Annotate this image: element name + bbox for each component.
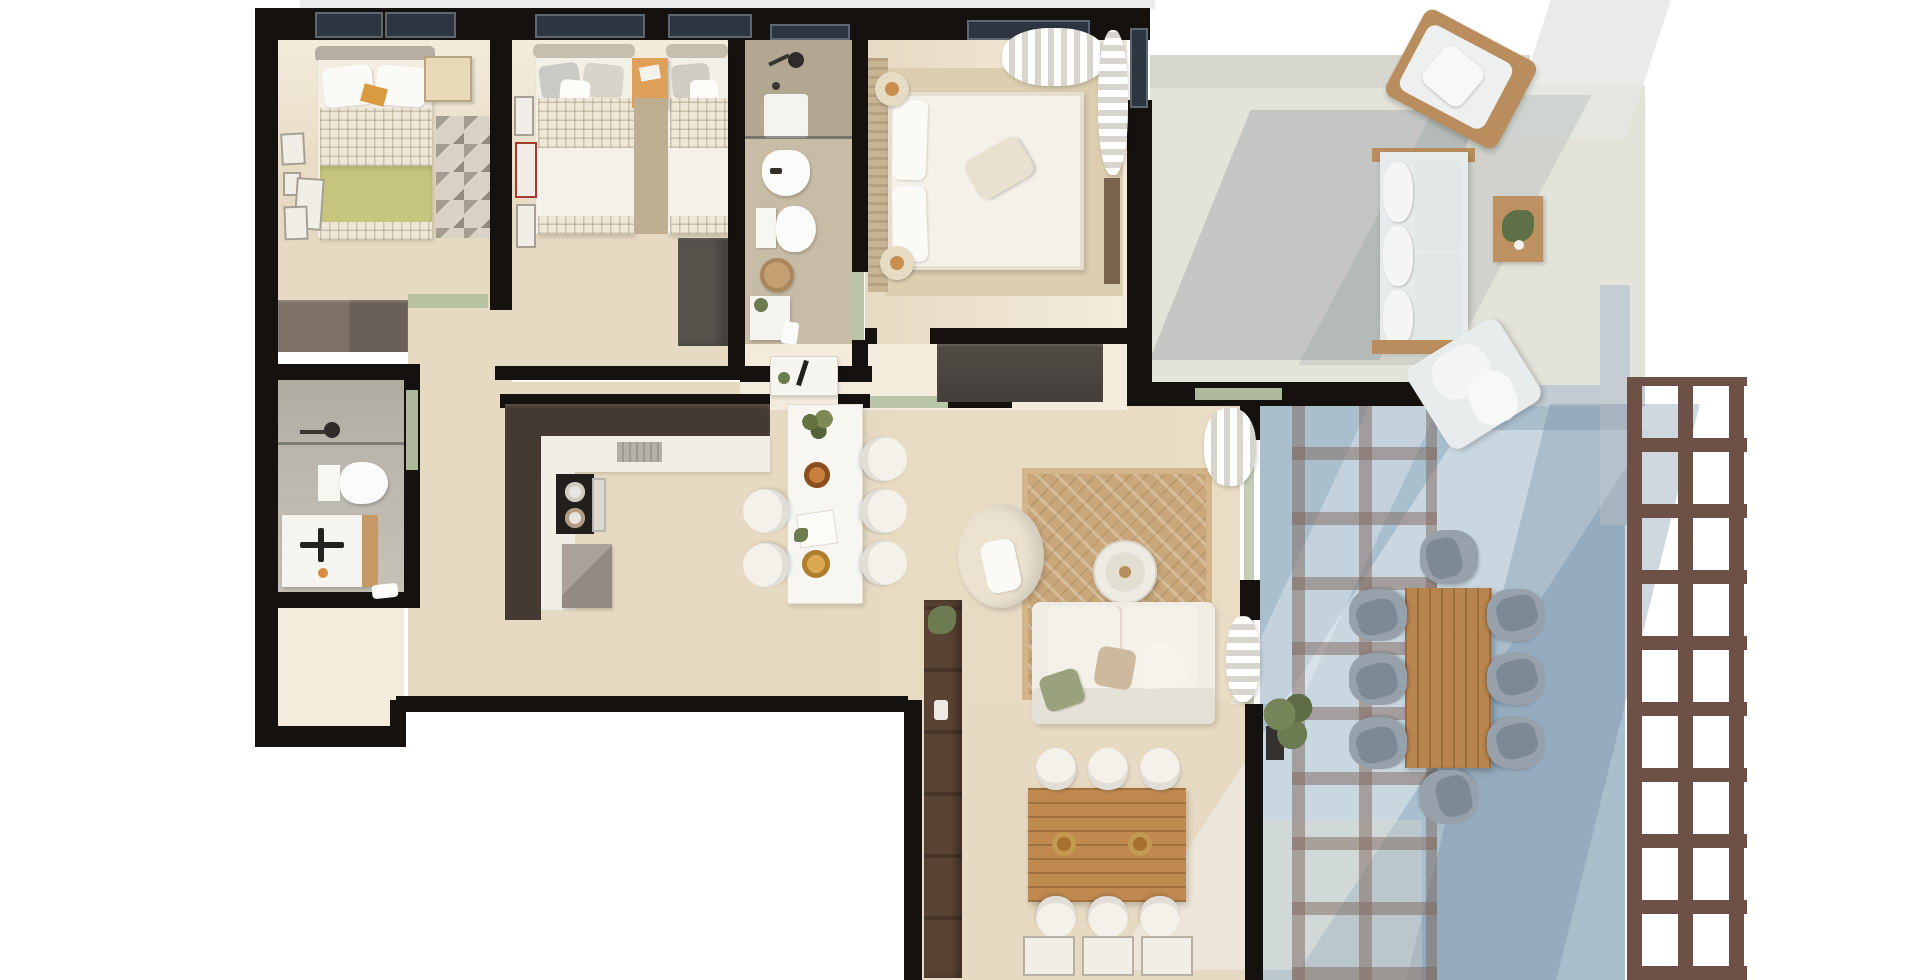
kitchen-vent [617, 442, 662, 462]
terrace-side-table-plant [1502, 210, 1534, 242]
wall-bed1-bottom [275, 364, 420, 380]
bath-vanity-plant [754, 298, 768, 312]
wall-bottom-mid [396, 696, 908, 712]
entry-console-plant [778, 372, 790, 384]
bed2b-headboard [666, 44, 728, 58]
bathroom-window [770, 24, 850, 40]
bed1-wall-frame-4 [283, 206, 308, 241]
shower-tray [764, 94, 808, 138]
wall-living-top [1127, 382, 1440, 406]
terrace-dining-table [1405, 588, 1492, 768]
terrace-sofa-seat-2 [1415, 254, 1462, 344]
wall-bath-east-upper [852, 8, 868, 272]
bedroom-2-window-a [535, 14, 645, 38]
terrace-side-table-vase [1514, 240, 1524, 250]
bed1-wardrobe [278, 300, 408, 352]
entry-wardrobe-cabinet [937, 344, 1103, 402]
dining-table-bowl-2 [1128, 832, 1152, 856]
dining-chair-bottom-1 [1036, 896, 1076, 938]
master-lamp-top [885, 82, 899, 96]
bed2b-duvet [670, 148, 728, 218]
island-sprig [794, 528, 808, 542]
utility-corner-floor [278, 606, 404, 726]
bed1-desk [424, 56, 472, 102]
terrace-chair-head-bottom [1420, 770, 1478, 824]
island-plant [800, 410, 834, 440]
bath2-shower-arm [300, 430, 326, 434]
bed1-plaid-sheet [320, 108, 432, 166]
bathroom-left-door [406, 390, 418, 470]
dining-wall-frame-1 [1023, 936, 1075, 976]
bath2-soap [318, 568, 328, 578]
dining-chair-top-2 [1088, 748, 1128, 790]
floor-plan-image [0, 0, 1920, 980]
bed2a-plaid-fold [538, 98, 634, 148]
dining-wall-frame-2 [1082, 936, 1134, 976]
terrace-chair-left-3 [1349, 717, 1407, 769]
master-curtain-top [1002, 28, 1106, 86]
island-chair-right-1 [861, 437, 907, 481]
kitchen-pot-2 [565, 508, 585, 528]
bedroom-1-window-a [315, 12, 383, 38]
terrace-planter-plant [1258, 688, 1320, 754]
shower-valve [772, 82, 780, 90]
bed1-wall-frame-1 [280, 132, 306, 165]
island-chair-left-1 [743, 489, 789, 533]
kitchen-counter-dark-top [505, 404, 770, 440]
master-east-glass-door [1130, 28, 1148, 108]
island-chair-right-3 [861, 541, 907, 585]
bath2-glass-line [278, 442, 404, 445]
toilet-tank [756, 208, 776, 248]
bed2b-plaid-foot [670, 216, 728, 234]
terrace-chair-right-1 [1487, 589, 1545, 641]
wall-living-east-seg2 [1240, 580, 1260, 620]
terrace-chair-right-3 [1487, 717, 1545, 769]
kitchen-sink [592, 478, 606, 532]
wall-master-east [1127, 100, 1152, 404]
bed1-plaid-foot [320, 222, 432, 240]
bed2a-duvet [538, 148, 634, 218]
terrace-sofa-seat-1 [1415, 160, 1462, 250]
wall-dining-left [904, 700, 922, 980]
terrace-sofa-pillow-2 [1383, 226, 1413, 286]
bed2a-plaid-foot [538, 216, 634, 234]
wall-bed2-bath-divider [728, 8, 745, 380]
dining-chair-top-1 [1036, 748, 1076, 790]
bed1-olive-blanket [320, 166, 432, 222]
bed2b-plaid-fold [670, 98, 728, 148]
dining-chair-top-3 [1140, 748, 1180, 790]
wicker-stool [760, 258, 794, 292]
terrace-chair-left-1 [1349, 589, 1407, 641]
dining-cabinet [924, 600, 962, 978]
island-chair-right-2 [861, 489, 907, 533]
pergola-lattice [1627, 377, 1747, 980]
island-plate-1 [804, 462, 830, 488]
wall-master-bottom-a [865, 328, 877, 344]
bed2-wall-frame-2 [515, 142, 537, 198]
wall-bottom-left [255, 726, 405, 747]
bath2-toilet-bowl [340, 462, 388, 504]
dining-wall-frame-3 [1141, 936, 1193, 976]
terrace-sofa-pillow-1 [1383, 162, 1413, 222]
kitchen-counter-dark-left [505, 440, 541, 620]
wall-bath-left-bottom [275, 592, 420, 608]
shower-head-icon [788, 52, 804, 68]
dining-chair-bottom-2 [1088, 896, 1128, 938]
bed2-wall-frame-1 [514, 96, 534, 136]
bath2-vanity-wood-side [362, 515, 378, 587]
bed2-wall-frame-3 [516, 204, 536, 248]
island-plate-2 [802, 550, 830, 578]
master-sideboard [1104, 178, 1120, 284]
bidet-tap [770, 168, 782, 174]
bath-towel [781, 321, 800, 345]
master-curtain-right [1098, 30, 1128, 175]
master-pillow-top [892, 99, 929, 180]
terrace-chair-right-2 [1487, 653, 1545, 705]
bath2-toilet-tank [318, 465, 340, 501]
dining-table-bowl-1 [1052, 832, 1076, 856]
dining-cabinet-jar [934, 700, 948, 720]
kitchen-pot-1 [565, 482, 585, 502]
dining-chair-bottom-3 [1140, 896, 1180, 938]
bedroom-1-window-b [385, 12, 456, 38]
bath2-faucet-cross [318, 528, 324, 562]
bidet [762, 150, 810, 196]
dining-cabinet-plant [928, 606, 956, 634]
bedroom-1-door [408, 294, 488, 308]
bed2-runner-rug [634, 98, 668, 234]
terrace-sofa-pillow-3 [1383, 290, 1413, 346]
terrace-chair-head-top [1420, 530, 1478, 584]
bath2-towel [371, 583, 398, 600]
wall-bed1-bed2-divider [490, 8, 512, 310]
bathroom-top-door [852, 272, 864, 340]
kitchen-appliance [562, 544, 612, 608]
master-lamp-bottom [890, 256, 904, 270]
wall-bed2-bottom [495, 366, 757, 380]
living-sofa-pillow-beige [1093, 645, 1137, 691]
bed2-wardrobe [678, 238, 728, 346]
bath2-shower-head-icon [324, 422, 340, 438]
bed2a-headboard [533, 44, 635, 58]
hallway-floor [408, 292, 512, 696]
living-coffee-table-decor [1119, 566, 1131, 578]
wall-master-bottom-b [930, 328, 1150, 344]
bed1-rug [436, 116, 490, 238]
shower-glass-line [745, 136, 852, 139]
toilet-bowl [776, 206, 816, 252]
living-terrace-door [1195, 388, 1282, 400]
living-curtain-east [1226, 616, 1260, 702]
bedroom-2-window-b [668, 14, 752, 38]
living-curtain-top [1204, 408, 1256, 486]
terrace-chair-left-2 [1349, 653, 1407, 705]
living-sofa-pillow-white [1136, 640, 1186, 690]
island-chair-left-2 [743, 543, 789, 587]
